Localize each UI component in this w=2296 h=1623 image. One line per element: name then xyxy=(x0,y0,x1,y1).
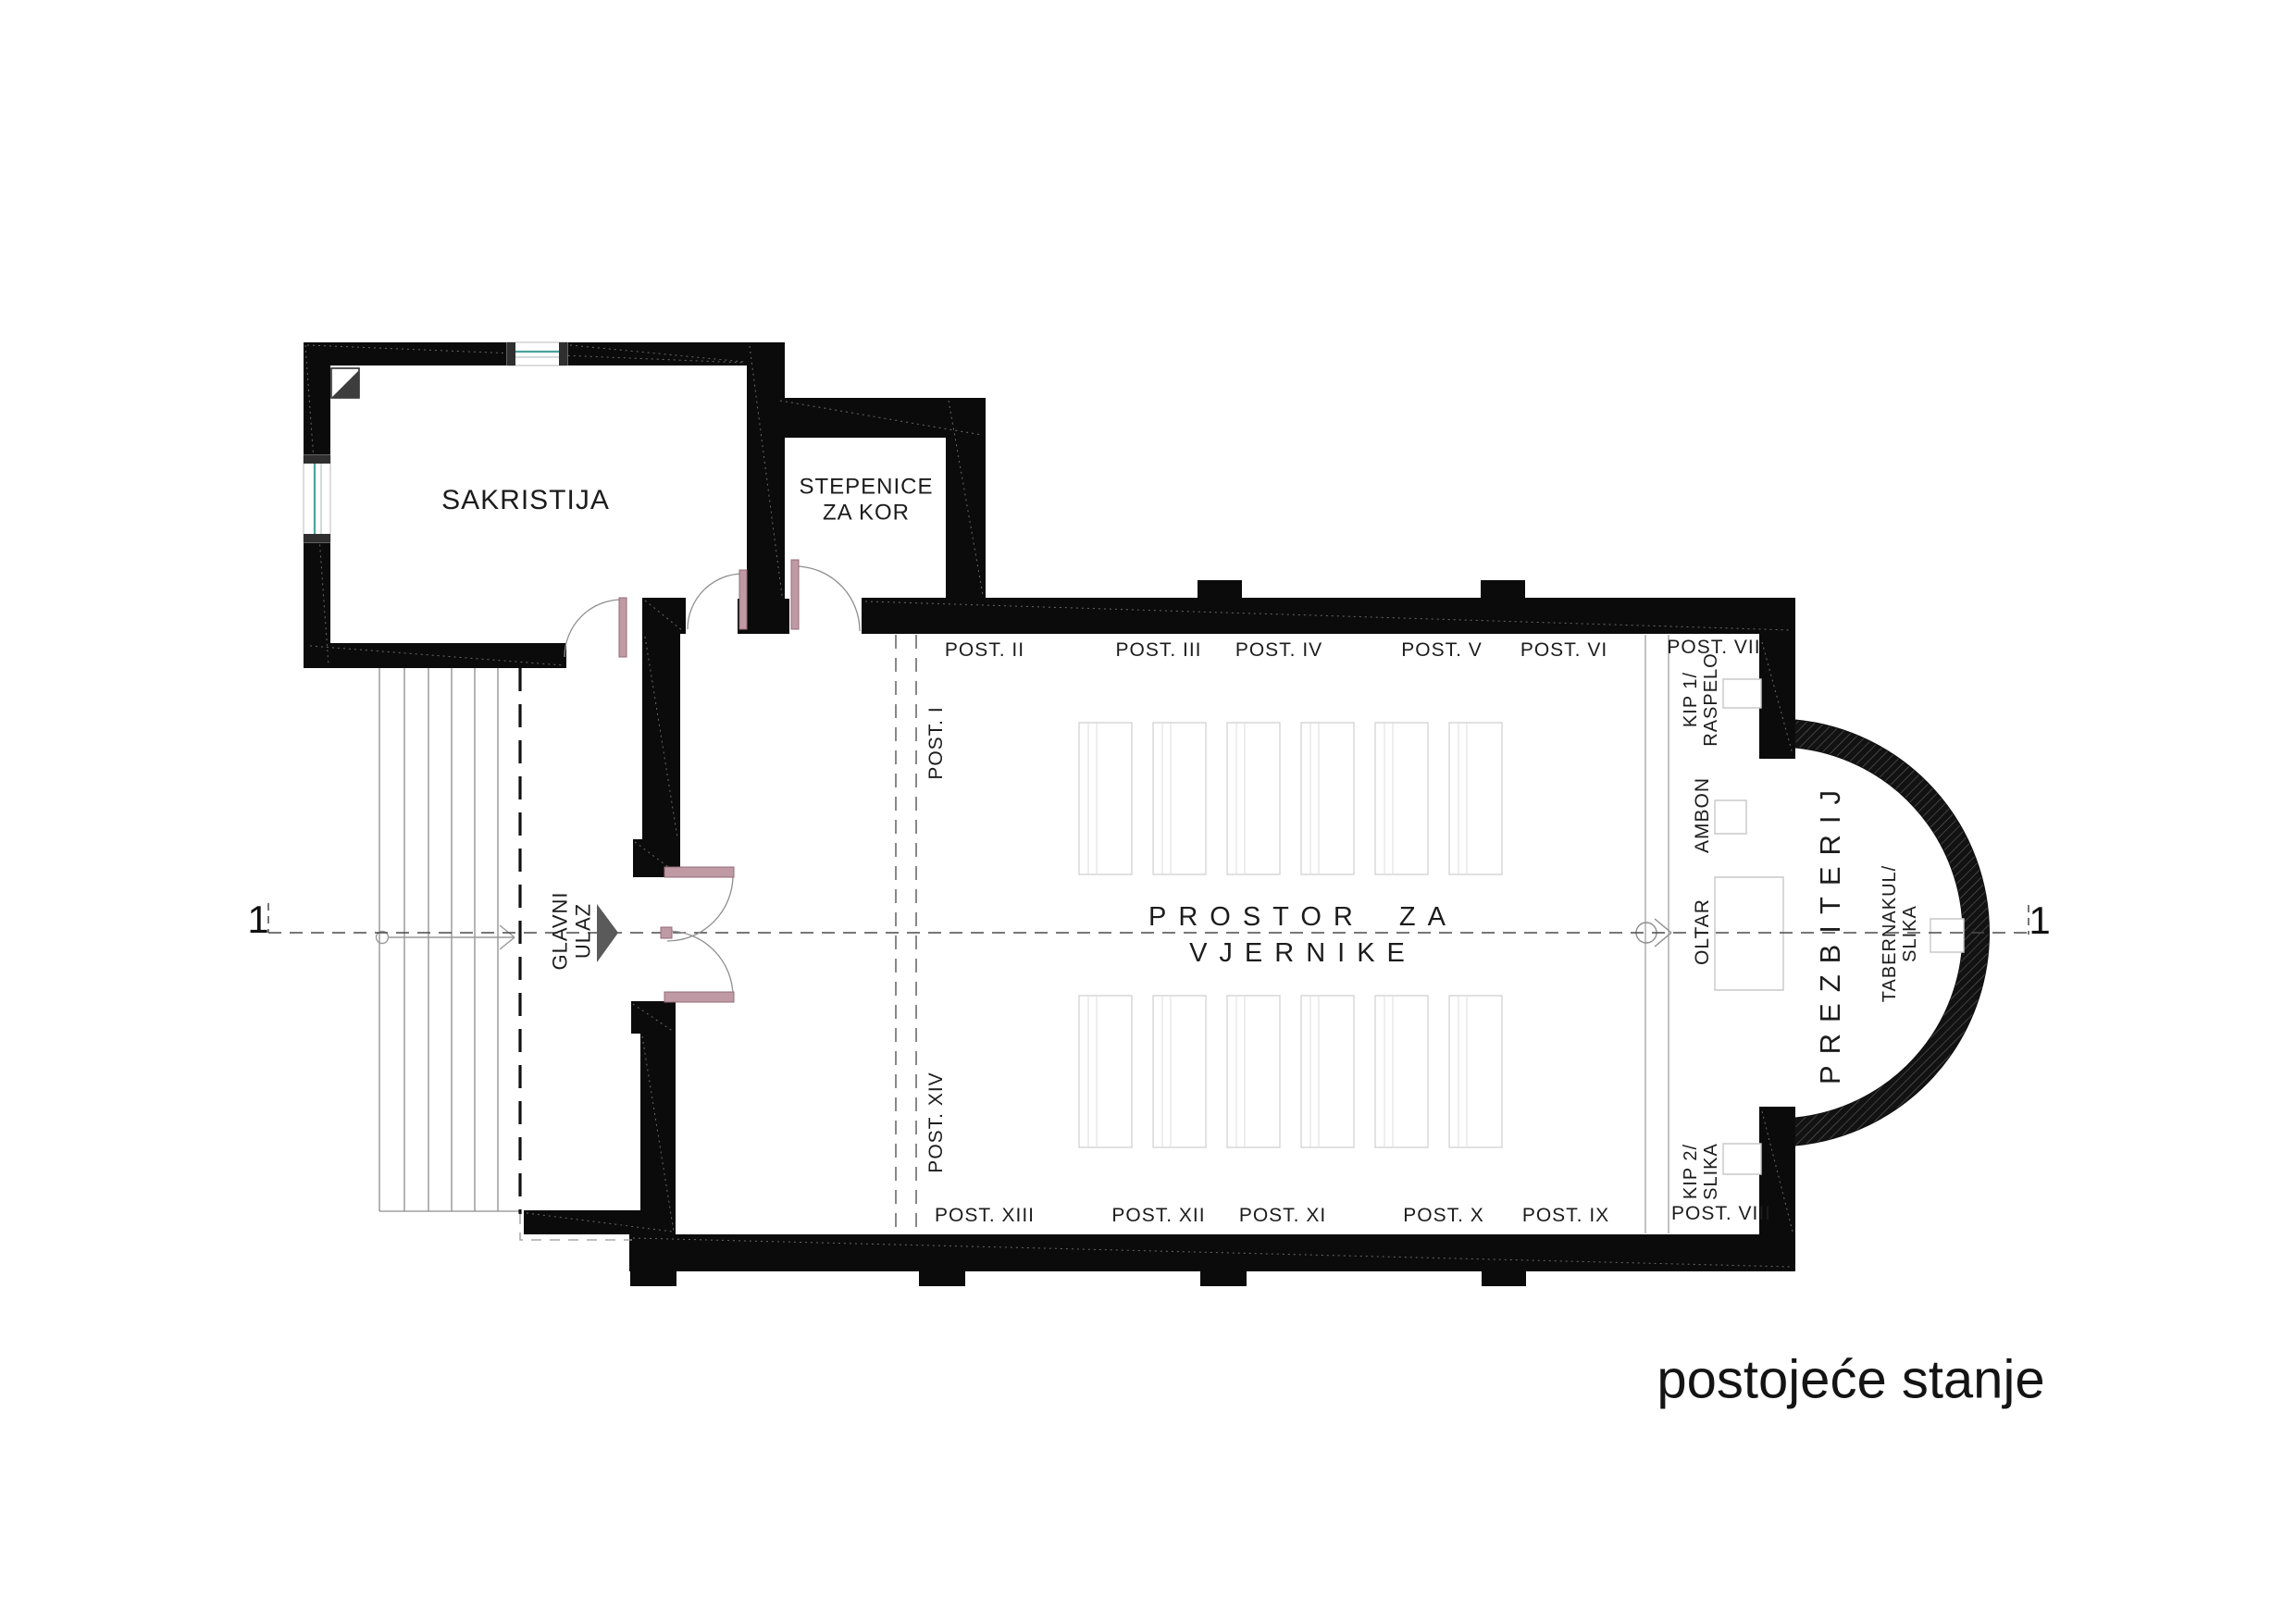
stairroom-door-leaf xyxy=(791,560,799,629)
window-opening xyxy=(304,455,330,542)
entrance-label: GLAVNI ULAZ xyxy=(549,891,596,970)
sacristy-north-window xyxy=(507,342,567,365)
drawing-title: postojeće stanje xyxy=(1657,1350,2044,1412)
station-label: POST. IV xyxy=(1235,639,1322,662)
section-marker-right: 1 xyxy=(2029,898,2050,943)
vestibule-north-corner xyxy=(642,598,686,634)
tabernakul-line1: TABERNAKUL/ xyxy=(1880,865,1900,1002)
sacristy-south-wall xyxy=(307,643,566,668)
stepenice-line2: ZA KOR xyxy=(799,500,933,526)
sacristy-south-door-leaf xyxy=(619,598,627,657)
furniture-label-tabernakul: TABERNAKUL/ SLIKA xyxy=(1880,865,1920,1002)
furniture-label-kip2: KIP 2/ SLIKA xyxy=(1681,1143,1721,1200)
sacristy-north-wall-left xyxy=(304,342,507,365)
station-label: POST. XII xyxy=(1111,1205,1205,1227)
south-pilaster-1 xyxy=(630,1271,676,1286)
station-label: POST. XIII xyxy=(935,1205,1035,1227)
stairroom-east-wall xyxy=(946,398,986,598)
window-cap xyxy=(304,455,330,464)
station-label: POST. V xyxy=(1401,639,1483,662)
sacristy-vestibule-door-leaf xyxy=(739,570,747,629)
sacristy-west-wall-upper xyxy=(304,342,330,455)
station-label: POST. VIII xyxy=(1671,1203,1771,1225)
floor-plan-canvas: SAKRISTIJA STEPENICE ZA KOR GLAVNI ULAZ … xyxy=(0,0,2296,1623)
stepenice-line1: STEPENICE xyxy=(799,474,933,500)
sacristy-vestibule-door-arc xyxy=(688,574,743,629)
section-marker-left: 1 xyxy=(247,898,268,942)
kip2-line2: SLIKA xyxy=(1701,1143,1721,1200)
entrance-line2: ULAZ xyxy=(572,891,595,970)
station-label: POST. I xyxy=(925,706,948,779)
wall-joint-dotted-lines xyxy=(305,345,1793,1267)
window-cap xyxy=(559,342,567,365)
room-label-sakristija: SAKRISTIJA xyxy=(441,485,610,517)
kip1-line2: RASPELO xyxy=(1701,652,1721,746)
furniture-label-oltar: OLTAR xyxy=(1692,898,1714,965)
window-cap xyxy=(304,534,330,542)
south-pilaster-3 xyxy=(1200,1271,1247,1286)
sacristy-south-door-arc xyxy=(565,600,622,657)
stair-walk-line xyxy=(377,925,515,949)
tabernakul-line2: SLIKA xyxy=(1900,865,1920,1002)
kip2-line1: KIP 2/ xyxy=(1681,1143,1701,1200)
station-label: POST. XI xyxy=(1239,1205,1326,1227)
sacristy-west-window xyxy=(304,455,330,542)
kip1-line1: KIP 1/ xyxy=(1681,652,1701,746)
furniture-label-ambon: AMBON xyxy=(1692,777,1714,853)
nave-line1: PROSTOR ZA xyxy=(1148,899,1458,935)
room-label-prezbiterij: PREZBITERIJ xyxy=(1814,779,1847,1084)
south-pilaster-2 xyxy=(919,1271,965,1286)
entrance-line1: GLAVNI xyxy=(549,891,572,970)
nave-north-wall xyxy=(862,598,1795,634)
furniture-label-kip1: KIP 1/ RASPELO xyxy=(1681,652,1721,746)
station-label: POST. II xyxy=(945,639,1024,662)
main-door-meeting-stile xyxy=(661,927,672,938)
room-label-nave: PROSTOR ZA VJERNIKE xyxy=(1148,899,1458,972)
south-pilaster-4 xyxy=(1482,1271,1526,1286)
nave-line2: VJERNIKE xyxy=(1148,935,1458,972)
vestibule-west-wall-lower xyxy=(640,1001,676,1234)
station-label: POST. III xyxy=(1115,639,1201,662)
room-label-stepenice: STEPENICE ZA KOR xyxy=(799,474,933,525)
station-label: POST. VI xyxy=(1520,639,1607,662)
corner-triangle-icon xyxy=(331,368,359,398)
sacristy-east-wall xyxy=(747,342,785,599)
main-door-upper-leaf xyxy=(664,867,734,877)
north-pilaster-2 xyxy=(1481,580,1525,598)
station-label: POST. IX xyxy=(1522,1205,1609,1227)
stairroom-door-arc xyxy=(795,566,860,631)
entrance-direction-arrow-icon xyxy=(597,904,618,962)
choir-gallery-dashed-lines xyxy=(896,635,916,1233)
window-cap xyxy=(507,342,515,365)
main-door-lower-leaf xyxy=(664,992,734,1002)
window-opening xyxy=(507,342,567,365)
north-pilaster-1 xyxy=(1198,580,1242,598)
station-label: POST. XIV xyxy=(925,1072,948,1172)
entrance-stairs xyxy=(379,668,520,1211)
chancel-pier-north xyxy=(1759,634,1795,759)
sacristy-north-wall-right xyxy=(567,342,747,365)
nave-south-wall xyxy=(629,1234,1795,1271)
station-label: POST. X xyxy=(1403,1205,1484,1227)
